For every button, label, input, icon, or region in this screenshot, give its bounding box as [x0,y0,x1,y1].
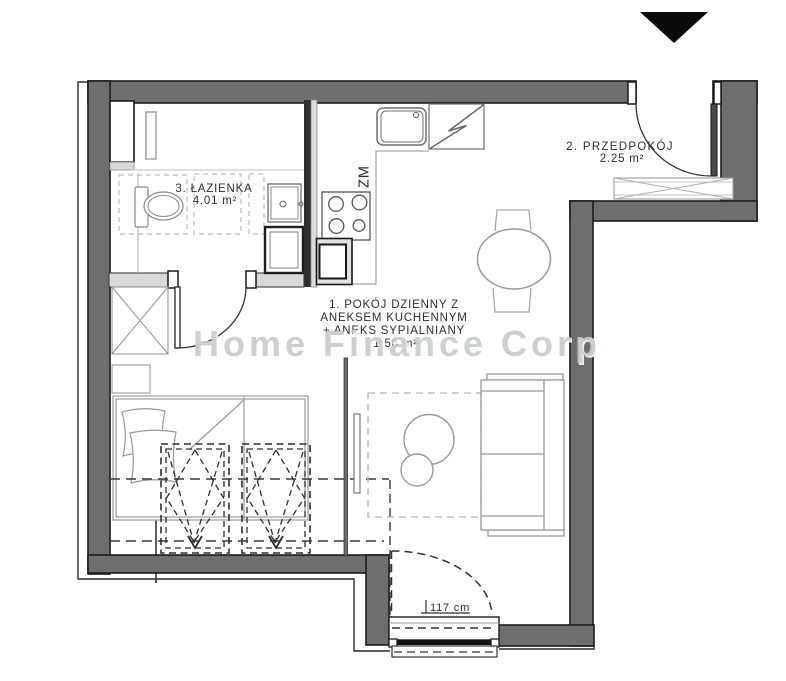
svg-text:2. PRZEDPOKÓJ: 2. PRZEDPOKÓJ [566,140,674,153]
svg-text:4.01 m²: 4.01 m² [193,195,238,207]
svg-text:2.25 m²: 2.25 m² [600,153,645,165]
svg-text:Home Finance Corp: Home Finance Corp [193,323,601,364]
svg-text:3. ŁAZIENKA: 3. ŁAZIENKA [175,183,252,195]
svg-text:1. POKÓJ DZIENNY Z: 1. POKÓJ DZIENNY Z [329,298,459,311]
svg-text:ZM: ZM [357,165,373,188]
svg-text:117 cm: 117 cm [430,602,470,614]
